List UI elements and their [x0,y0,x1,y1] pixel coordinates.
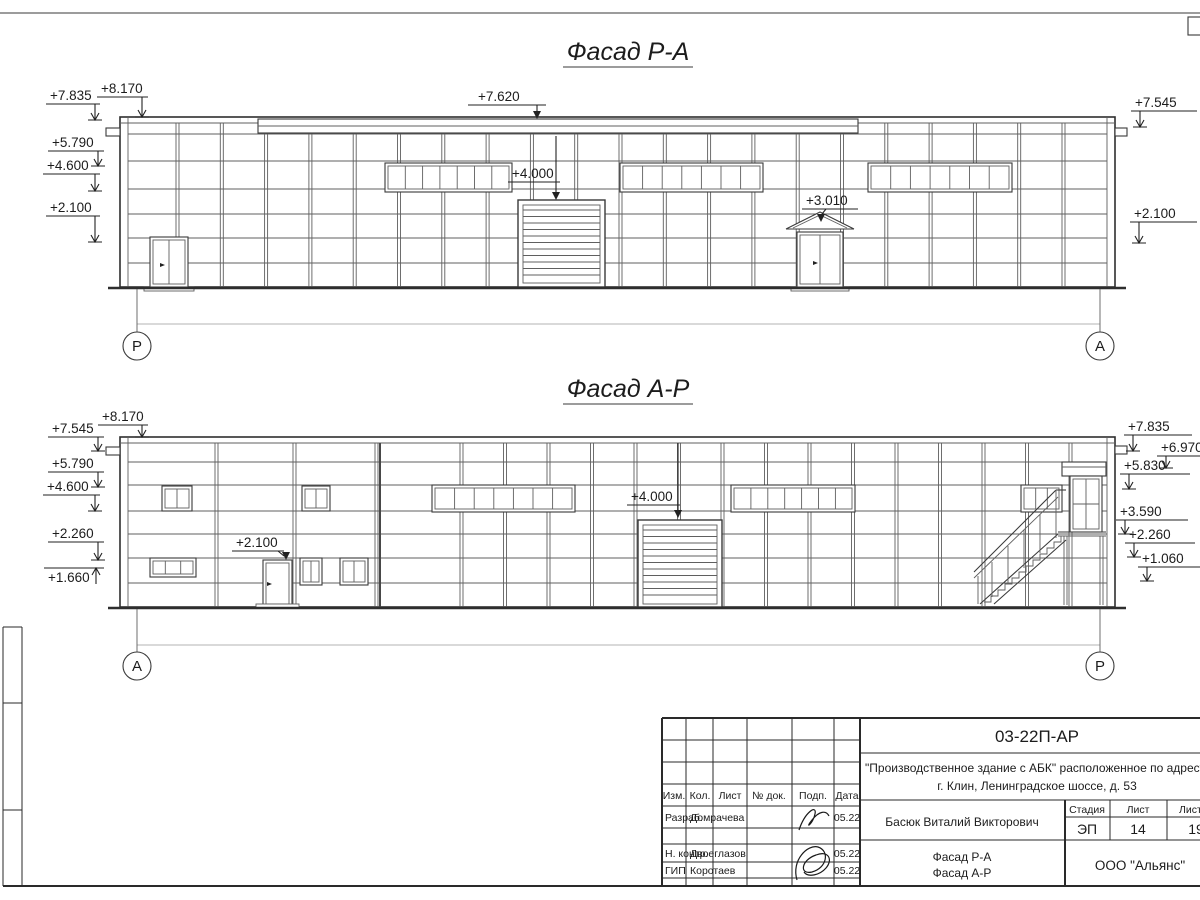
title-block: Изм. Кол. Лист № док. Подп. Дата Разраб.… [662,718,1200,886]
elevation-mark: +4.600 [43,158,102,191]
axis-letter: Р [132,338,142,355]
col-header-doc: № док. [752,790,786,802]
window [150,558,196,577]
facade-drawing-svg: Фасад Р-А [0,0,1200,900]
project-line1: "Производственное здание с АБК" располож… [865,761,1200,775]
wall-outline [120,117,1115,287]
col-header-izm: Изм. [663,790,686,802]
col-header-kol: Кол. [690,790,711,802]
elevation-mark: +2.100 [1130,206,1197,243]
signature [796,847,830,880]
svg-text:+3.590: +3.590 [1120,504,1162,519]
axis-markers: Р А [123,289,1114,360]
svg-text:+4.000: +4.000 [512,166,554,181]
row-date: 05.22 [834,865,860,877]
row-name: Двоеглазов [690,848,746,860]
svg-text:+8.170: +8.170 [101,81,143,96]
svg-text:+2.260: +2.260 [52,526,94,541]
elevation-mark: +5.830 [1120,458,1190,489]
axis-markers: А Р [123,609,1114,680]
sheet-label: Лист [1127,804,1150,816]
col-header-data: Дата [835,790,858,802]
row-date: 05.22 [834,848,860,860]
elevation-mark: +8.170 [97,81,149,117]
svg-text:+1.060: +1.060 [1142,551,1184,566]
vestibule-door [1070,476,1102,532]
row-name: Коротаев [690,865,736,877]
elevation-mark: +4.600 [43,479,102,511]
elevation-mark: +2.100 [46,200,102,242]
svg-text:+7.545: +7.545 [52,421,94,436]
col-header-podp: Подп. [799,790,827,802]
elevation-mark: +1.060 [1138,551,1200,581]
svg-text:+8.170: +8.170 [102,409,144,424]
svg-text:+7.545: +7.545 [1135,95,1177,110]
project-line2: г. Клин, Ленинградское шоссе, д. 53 [937,779,1137,793]
svg-text:+6.970: +6.970 [1161,440,1200,455]
svg-text:+2.100: +2.100 [50,200,92,215]
approver-name: Басюк Виталий Викторович [885,815,1038,829]
roller-gate [518,200,605,287]
window-strip [731,485,855,512]
window [300,558,322,585]
doc-number: 03-22П-АР [995,727,1079,746]
elevation-mark: +1.660 [44,568,104,585]
row-role: ГИП [665,865,686,877]
svg-text:+4.000: +4.000 [631,489,673,504]
window [302,486,330,511]
elevation-mark: +7.545 [1131,95,1197,127]
margin-boxes [3,627,22,886]
row-date: 05.22 [834,812,860,824]
axis-letter: А [1095,338,1105,355]
col-header-list: Лист [719,790,742,802]
facade-ar-title: Фасад А-Р [567,375,690,403]
elevation-mark: +8.170 [98,409,149,437]
facade-ra: Фасад Р-А [43,38,1197,360]
axis-letter: Р [1095,658,1105,675]
gutter-tab-right [1115,128,1127,136]
elevation-mark: +2.260 [48,526,105,560]
svg-text:+3.010: +3.010 [806,193,848,208]
company-name: ООО "Альянс" [1095,858,1185,873]
elevation-mark: +7.545 [48,421,105,451]
elevation-mark: +7.835 [46,88,102,120]
gutter-tab-left [106,447,120,455]
window [162,486,192,511]
svg-text:+5.830: +5.830 [1124,458,1166,473]
facade-ar: Фасад А-Р [43,375,1200,680]
stage-label: Стадия [1069,804,1105,816]
entrance-door [144,237,194,291]
frame-corner-box [1188,17,1200,35]
svg-text:+7.620: +7.620 [478,89,520,104]
gutter-tab-left [106,128,120,136]
window-strip [385,163,512,192]
content-line2: Фасад А-Р [933,866,992,880]
window [340,558,368,585]
svg-text:+5.790: +5.790 [52,135,94,150]
sheets-label: Листов [1179,804,1200,816]
svg-text:+7.835: +7.835 [50,88,92,103]
signature [799,810,829,830]
svg-text:+5.790: +5.790 [52,456,94,471]
svg-text:+4.600: +4.600 [47,158,89,173]
drawing-sheet: Фасад Р-А [0,0,1200,900]
window-strip [620,163,763,192]
axis-letter: А [132,658,142,675]
sheet-value: 14 [1130,821,1146,837]
svg-text:+4.600: +4.600 [47,479,89,494]
entrance-door [256,560,299,608]
svg-text:+1.660: +1.660 [48,570,90,585]
content-line1: Фасад Р-А [933,850,992,864]
roller-gate [638,520,722,607]
svg-text:+2.100: +2.100 [236,535,278,550]
stage-value: ЭП [1077,821,1097,837]
svg-text:+7.835: +7.835 [1128,419,1170,434]
canopy [1062,462,1106,476]
window-strip [868,163,1012,192]
window-strip [432,485,575,512]
svg-text:+2.100: +2.100 [1134,206,1176,221]
elevation-mark: +7.620 [468,89,546,119]
row-name: Домрачева [690,812,745,824]
sheets-value: 19 [1188,821,1200,837]
svg-text:+2.260: +2.260 [1129,527,1171,542]
facade-ra-title: Фасад Р-А [567,38,690,66]
gutter-tab-right [1115,446,1127,454]
